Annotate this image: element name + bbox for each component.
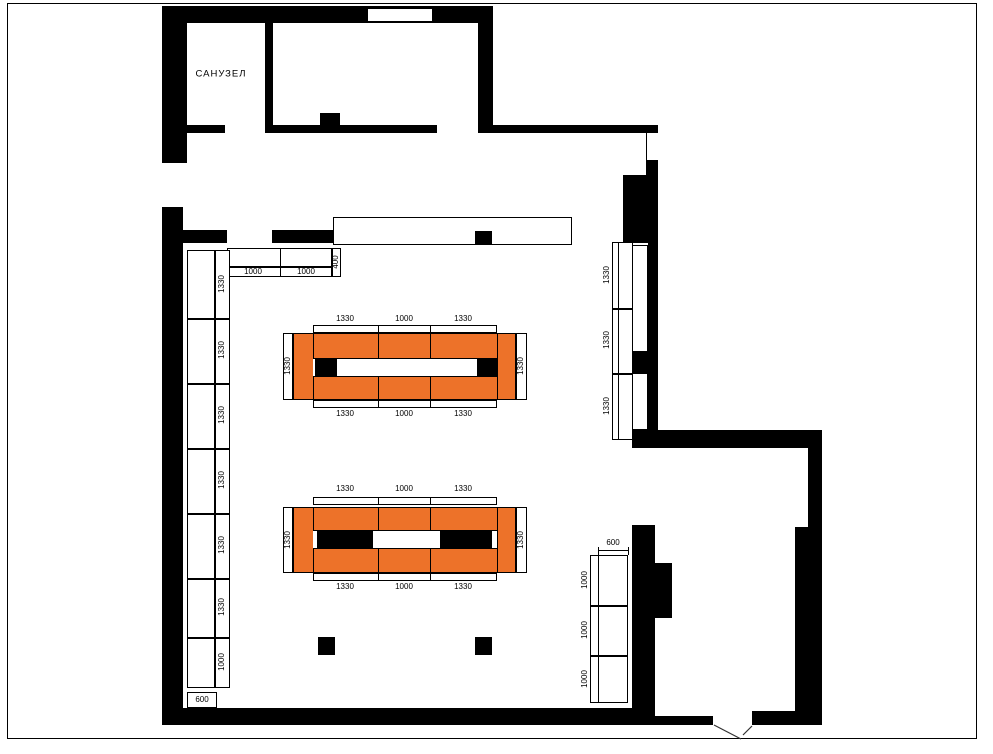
shelf-divider <box>187 513 230 515</box>
dimension-label: 1330 <box>218 536 226 554</box>
gondola-dim-bracket <box>313 497 497 505</box>
dimension-label: 1330 <box>218 598 226 616</box>
dimension-label: 1000 <box>297 268 315 276</box>
dimension-tick <box>430 400 431 408</box>
dimension-label: 1330 <box>603 266 611 284</box>
gondola-dim-bracket <box>313 400 497 408</box>
gondola-dim-bracket <box>313 325 497 333</box>
floor-plan: САНУЗЕЛ 1000 1000 400 1330 1330 1330 133… <box>0 0 993 754</box>
dimension-label: 1000 <box>581 571 589 589</box>
shelf-divider <box>187 578 230 580</box>
dimension-label: 1000 <box>581 621 589 639</box>
gondola-base-block <box>317 531 373 548</box>
shelf-divider <box>280 248 281 267</box>
dimension-tick <box>430 497 431 505</box>
dimension-tick <box>628 547 629 555</box>
dimension-label: 1000 <box>395 485 413 493</box>
dimension-label: 1000 <box>395 410 413 418</box>
dimension-tick <box>378 400 379 408</box>
dimension-tick <box>430 573 431 581</box>
shelf-divider <box>280 267 281 277</box>
bottom-right-rack-body <box>590 555 628 703</box>
dimension-label: 1330 <box>336 315 354 323</box>
dimension-label: 1000 <box>218 653 226 671</box>
gondola-base-block <box>440 531 492 548</box>
structural-column <box>475 637 492 655</box>
dimension-label: 1330 <box>284 531 292 549</box>
shelf-divider <box>590 605 628 607</box>
dimension-label: 400 <box>332 255 340 268</box>
dimension-label: 1330 <box>218 341 226 359</box>
shelf-divider <box>187 448 230 450</box>
dimension-label: 1330 <box>517 357 525 375</box>
gondola-base-block <box>315 359 337 376</box>
dimension-label: 1330 <box>603 397 611 415</box>
right-rack-backing <box>632 245 648 352</box>
right-rack-backing <box>632 373 648 430</box>
dimension-label: 1330 <box>336 583 354 591</box>
dimension-label: 1330 <box>517 531 525 549</box>
dimension-tick <box>378 325 379 333</box>
shelf-divider <box>590 655 628 657</box>
dimension-label: 1330 <box>336 485 354 493</box>
gondola-base-block <box>477 359 497 376</box>
dimension-label: 600 <box>606 539 619 547</box>
gondola-divider <box>497 333 498 400</box>
right-rack-body <box>618 242 633 440</box>
shelf-divider <box>598 555 599 703</box>
dimension-label: 1330 <box>218 471 226 489</box>
dimension-label: 1330 <box>454 485 472 493</box>
gondola-channel <box>313 358 497 377</box>
dimension-label: 1330 <box>603 331 611 349</box>
dimension-label: 1330 <box>218 275 226 293</box>
dimension-label: 1000 <box>395 315 413 323</box>
dimension-tick <box>430 325 431 333</box>
dimension-label: 600 <box>195 696 208 704</box>
shelf-divider <box>612 373 633 375</box>
dimension-label: 1330 <box>454 410 472 418</box>
dimension-label: 1330 <box>336 410 354 418</box>
dimension-label: 1000 <box>244 268 262 276</box>
shelf-divider <box>612 308 633 310</box>
structural-column <box>318 637 335 655</box>
dimension-label: 1000 <box>581 670 589 688</box>
dimension-label: 1330 <box>218 406 226 424</box>
gondola-divider <box>497 507 498 573</box>
dimension-line <box>598 550 628 551</box>
shelf-divider <box>187 318 230 320</box>
dimension-tick <box>378 497 379 505</box>
dimension-tick <box>378 573 379 581</box>
dimension-label: 1330 <box>454 315 472 323</box>
shelf-divider <box>187 383 230 385</box>
counter-column <box>475 231 492 245</box>
bathroom-label: САНУЗЕЛ <box>196 69 247 80</box>
shelf-divider <box>187 637 230 639</box>
dimension-label: 1330 <box>284 357 292 375</box>
left-rack-body <box>187 250 215 688</box>
left-rack-dim-strip <box>215 250 230 688</box>
dimension-label: 1330 <box>454 583 472 591</box>
counter <box>333 217 572 245</box>
dimension-tick <box>598 547 599 555</box>
gondola-dim-bracket <box>313 573 497 581</box>
dimension-label: 1000 <box>395 583 413 591</box>
